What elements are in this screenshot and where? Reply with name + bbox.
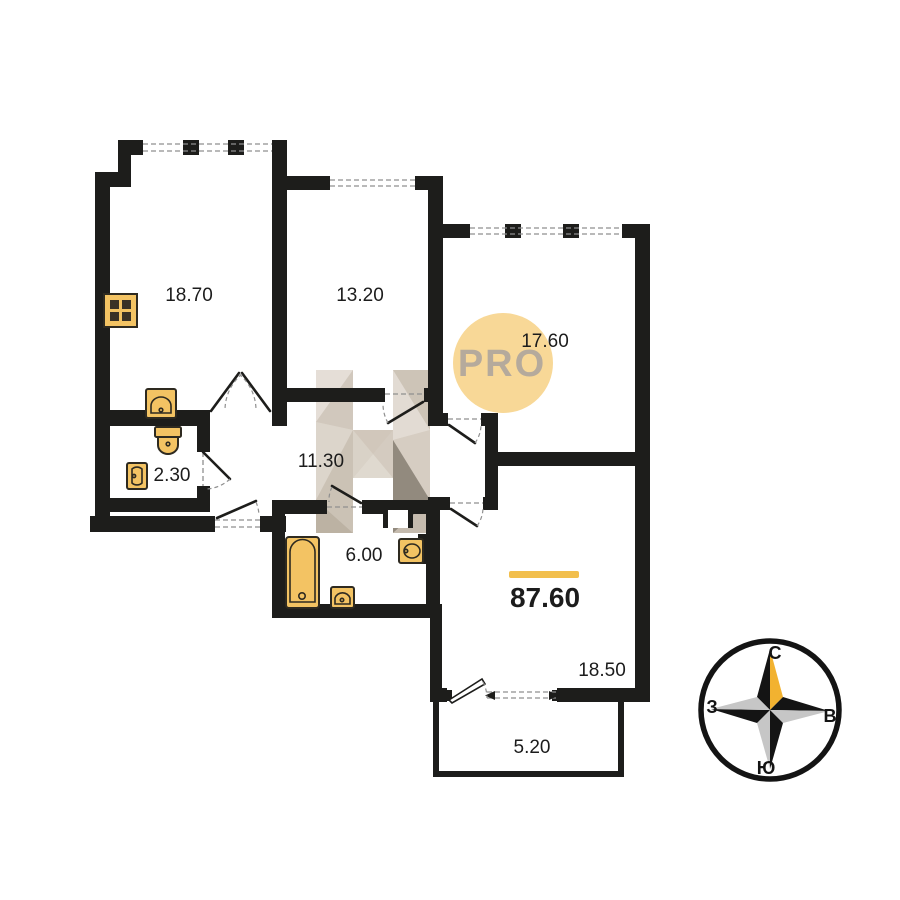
door-room-18-50 [450, 503, 483, 526]
total-area: 87.60 [509, 571, 580, 613]
area-label-room-17-60: 17.60 [521, 331, 569, 352]
entrance-door [217, 501, 259, 518]
area-label-room-18-70: 18.70 [165, 285, 213, 306]
pro-badge: PRO [453, 313, 553, 413]
floorplan-drawing: PRO [0, 0, 900, 900]
duct-shaft [383, 502, 413, 528]
total-area-label: 87.60 [510, 582, 580, 613]
door-room-17-60 [448, 419, 481, 443]
total-area-accent-bar [509, 571, 579, 578]
compass-west-label: З [706, 697, 717, 717]
area-label-balcony: 5.20 [514, 737, 551, 758]
wc-sink-icon [127, 463, 147, 489]
area-label-hall: 11.30 [298, 451, 344, 472]
compass-north-label: С [769, 643, 782, 663]
window-balcony-door [485, 691, 559, 700]
toilet-icon [155, 427, 181, 454]
washing-machine-icon [399, 539, 423, 563]
compass-rose-icon: С В Ю З [701, 641, 839, 779]
balcony-door [449, 679, 487, 703]
compass-east-label: В [824, 706, 837, 726]
compass-south-label: Ю [757, 758, 776, 778]
stove-icon [104, 294, 137, 327]
bathtub-icon [286, 537, 319, 608]
door-wc [203, 452, 230, 489]
window-room-18-70 [143, 144, 272, 151]
kitchen-sink-icon [146, 389, 176, 418]
floorplan-canvas: PRO [0, 0, 900, 900]
area-label-room-18-50: 18.50 [578, 660, 626, 681]
area-label-bathroom: 6.00 [346, 545, 383, 566]
bath-sink-icon [331, 587, 354, 608]
window-room-13-20 [330, 180, 415, 186]
area-label-wc: 2.30 [154, 465, 191, 486]
window-room-17-60 [470, 228, 622, 234]
area-label-room-13-20: 13.20 [336, 285, 384, 306]
double-door-living [211, 373, 270, 411]
entrance-threshold [215, 520, 260, 527]
